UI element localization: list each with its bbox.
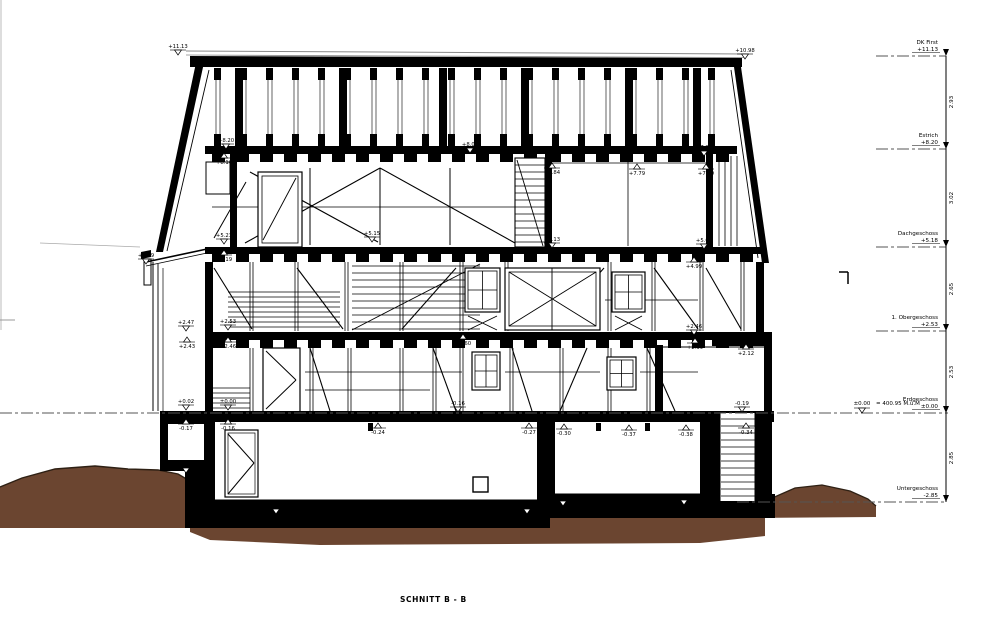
elevation-label: +2.12 bbox=[738, 351, 754, 357]
elevation-label: -0.17 bbox=[179, 426, 193, 432]
drawing-title: SCHNITT B - B bbox=[400, 595, 600, 604]
elevation-label: -0.27 bbox=[522, 430, 536, 436]
elevation-label: ±0.00 bbox=[220, 399, 237, 405]
dimension-value: 3.02 bbox=[949, 192, 955, 204]
elevation-label: +2.47 bbox=[178, 320, 194, 326]
elevation-label: -0.24 bbox=[371, 430, 385, 436]
elevation-label: -0.19 bbox=[735, 401, 749, 407]
elevation-label: -0.30 bbox=[557, 431, 571, 437]
dimension-value: 2.93 bbox=[949, 95, 955, 108]
datum-label: ±0.00 bbox=[854, 401, 871, 407]
dimension-value: 2.85 bbox=[949, 451, 955, 464]
elevation-label: -0.16 bbox=[221, 426, 235, 432]
elevation-label: -3.23 bbox=[269, 503, 283, 509]
elevation-label: -3.68 bbox=[677, 494, 691, 500]
level-name: Erdgeschoss bbox=[903, 397, 938, 403]
level-value: +11.13 bbox=[917, 47, 938, 53]
dimension-rail: DK First+11.13Estrich+8.20Dachgeschoss+5… bbox=[892, 40, 956, 502]
elevation-label: +11.13 bbox=[168, 44, 188, 50]
architectural-section-canvas: +11.13+10.98+8.20+8.16+8.04+7.99+7.84+7.… bbox=[0, 0, 1000, 627]
building-linework bbox=[141, 51, 848, 528]
elevation-label: +2.46 bbox=[686, 324, 703, 330]
elevation-label: -3.05 bbox=[556, 495, 570, 501]
elevation-label: +7.79 bbox=[629, 171, 645, 177]
elevation-label: +8.20 bbox=[218, 138, 235, 144]
elevation-label: +4.99 bbox=[686, 264, 702, 270]
elevation-label: +2.43 bbox=[179, 344, 195, 350]
level-value: +5.18 bbox=[921, 238, 939, 244]
elevation-label: +2.39 bbox=[687, 345, 703, 351]
elevation-label: +0.02 bbox=[178, 399, 194, 405]
section-drawing-svg: +11.13+10.98+8.20+8.16+8.04+7.99+7.84+7.… bbox=[0, 0, 1000, 627]
elevation-label: +5.13 bbox=[544, 237, 560, 243]
dimension-value: 2.53 bbox=[949, 365, 955, 378]
elevation-label: +5.23 bbox=[216, 233, 232, 239]
elevation-label: +4.59 bbox=[138, 253, 154, 259]
elevation-label: +7.84 bbox=[544, 170, 561, 176]
elevation-label: +7.79 bbox=[698, 171, 714, 177]
elevation-label: -0.38 bbox=[679, 432, 693, 438]
elevation-label: -0.37 bbox=[622, 432, 636, 438]
level-name: Estrich bbox=[919, 133, 939, 139]
elevation-label: +8.16 bbox=[216, 160, 233, 166]
elevation-label: -1.58 bbox=[179, 462, 193, 468]
level-name: 1. Obergeschoss bbox=[892, 315, 939, 321]
level-value: ±0.00 bbox=[921, 404, 939, 410]
level-name: DK First bbox=[916, 40, 938, 46]
elevation-label: +8.04 bbox=[462, 142, 479, 148]
dimension-value: 2.65 bbox=[949, 282, 955, 295]
level-name: Dachgeschoss bbox=[898, 231, 938, 237]
elevation-label: +2.46 bbox=[220, 344, 237, 350]
elevation-label: +10.98 bbox=[735, 48, 755, 54]
elevation-label: -3.25 bbox=[520, 503, 534, 509]
elevation-label: +7.99 bbox=[696, 145, 712, 151]
level-value: +8.20 bbox=[921, 140, 939, 146]
elevation-label: +5.19 bbox=[216, 257, 232, 263]
level-value: +2.53 bbox=[921, 322, 939, 328]
elevation-label: -0.16 bbox=[451, 401, 465, 407]
level-value: -2.85 bbox=[924, 493, 939, 499]
elevation-label: +2.53 bbox=[220, 319, 236, 325]
elevation-label: +5.15 bbox=[364, 231, 380, 237]
elevation-label: -0.34 bbox=[739, 430, 753, 436]
level-name: Untergeschoss bbox=[897, 486, 938, 492]
elevation-label: +2.60 bbox=[455, 341, 472, 347]
elevation-label: +5.05 bbox=[696, 238, 712, 244]
